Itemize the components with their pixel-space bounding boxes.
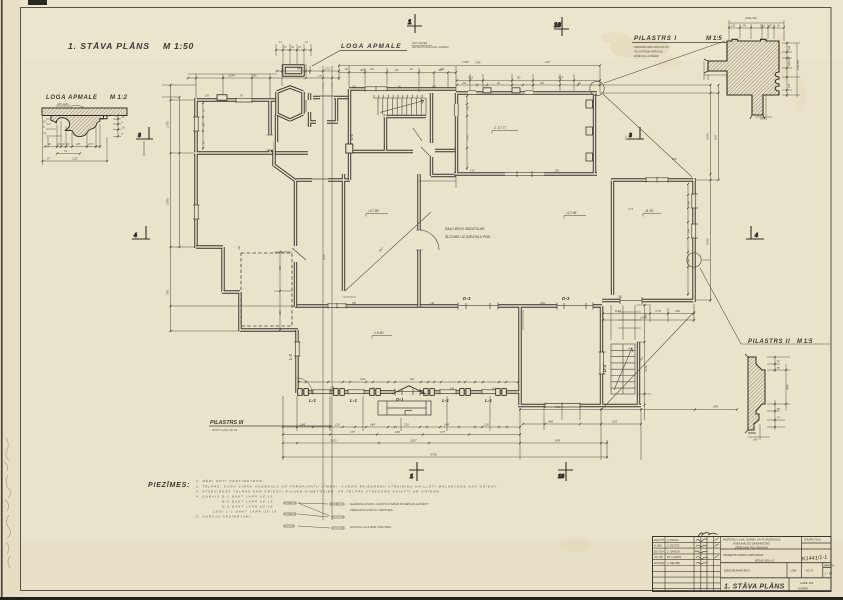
svg-text:RIEĶĒRĒ MĒD ARHIVOLŪTI: RIEĶĒRĒ MĒD ARHIVOLŪTI — [634, 45, 670, 49]
svg-text:180,150: 180,150 — [788, 56, 791, 66]
svg-text:18,5: 18,5 — [760, 25, 765, 28]
svg-text:177: 177 — [350, 430, 355, 434]
svg-text:IZBŪVĒJAMĀ ĒKA: IZBŪVĒJAMĀ ĒKA — [724, 569, 750, 573]
svg-text:959: 959 — [555, 439, 560, 443]
svg-text:G. EGLĪTIS: G. EGLĪTIS — [667, 545, 680, 548]
svg-text:D-3: D-3 — [463, 296, 471, 301]
svg-text:140: 140 — [467, 105, 470, 110]
svg-text:148: 148 — [444, 423, 449, 427]
svg-text:950: 950 — [713, 405, 718, 409]
svg-text:110: 110 — [484, 423, 489, 427]
svg-text:263: 263 — [539, 82, 545, 85]
svg-text:LDM: LDM — [790, 569, 797, 573]
svg-text:DURVJU AILA BAR VĀRTNES: DURVJU AILA BAR VĀRTNES — [350, 525, 391, 529]
svg-text:VR. INŽ.: VR. INŽ. — [654, 556, 664, 559]
svg-text:148: 148 — [370, 423, 375, 427]
svg-text:2. 17.77: 2. 17.77 — [493, 126, 506, 130]
svg-text:2. TELPĀS, KURU SIENU AUGŠDAĻU: 2. TELPĀS, KURU SIENU AUGŠDAĻU AR PĀRMAI… — [195, 484, 499, 489]
svg-text:1 : 50: 1 : 50 — [825, 572, 833, 576]
svg-text:340: 340 — [548, 420, 553, 424]
svg-text:172: 172 — [318, 75, 323, 78]
svg-text:ŠĻITOMS UZ DZĪVOKĻU PND: ŠĻITOMS UZ DZĪVOKĻU PND — [445, 234, 491, 239]
svg-text:442: 442 — [238, 245, 241, 250]
svg-text:M 1:50: M 1:50 — [163, 41, 194, 51]
svg-text:P. RADIŅA: P. RADIŅA — [667, 539, 679, 542]
svg-text:B. REV.: B. REV. — [654, 545, 663, 548]
svg-text:L-1: L-1 — [309, 398, 316, 403]
svg-text:337: 337 — [558, 76, 563, 80]
svg-text:16: 16 — [554, 23, 561, 29]
svg-text:5. DURVJU APZĪMĒJUMI:: 5. DURVJU APZĪMĒJUMI: — [196, 515, 253, 519]
svg-text:PILASTRS I: PILASTRS I — [634, 35, 677, 42]
svg-text:PILASTRIEM APĒUNAL: PILASTRIEM APĒUNAL — [634, 50, 664, 54]
svg-text:455: 455 — [644, 313, 648, 318]
svg-text:A. MELNBR.: A. MELNBR. — [666, 562, 681, 565]
svg-text:700: 700 — [618, 296, 623, 299]
svg-text:9730: 9730 — [430, 453, 437, 457]
svg-text:350: 350 — [760, 118, 765, 121]
svg-text:GRUPA 7DAL: GRUPA 7DAL — [804, 538, 822, 542]
svg-text:± 0.00: ± 0.00 — [374, 331, 384, 335]
svg-text:LOGA APMALE: LOGA APMALE — [46, 95, 98, 101]
svg-text:L-1: L-1 — [349, 133, 354, 140]
svg-text:292: 292 — [409, 378, 415, 381]
svg-text:120: 120 — [788, 45, 791, 50]
svg-text:4. DURVIS D-1 DAKT LAPĀ U: 4. DURVIS D-1 DAKT LAPĀ UZ-15, — [196, 495, 275, 499]
svg-text:640: 640 — [672, 157, 677, 161]
svg-text:ZĪMĒJUMS PID VIDAGAS: ZĪMĒJUMS PID VIDAGAS — [734, 545, 768, 549]
svg-text:1307: 1307 — [410, 439, 417, 443]
svg-text:4.77: 4.77 — [628, 207, 634, 211]
svg-text:331: 331 — [370, 68, 375, 71]
svg-text:390: 390 — [279, 265, 282, 270]
svg-text:25: 25 — [283, 45, 287, 49]
svg-text:LĪST NOVES: LĪST NOVES — [412, 41, 428, 45]
svg-text:148: 148 — [430, 302, 435, 305]
svg-text:140: 140 — [688, 228, 691, 233]
svg-text:390: 390 — [279, 310, 282, 315]
svg-text:L-1: L-1 — [288, 353, 293, 360]
svg-text:2730: 2730 — [323, 254, 326, 261]
svg-text:1940: 1940 — [360, 378, 366, 381]
svg-text:110: 110 — [492, 388, 496, 391]
svg-text:4000: 4000 — [787, 384, 790, 390]
svg-text:263: 263 — [204, 95, 210, 98]
svg-text:Z. GRASOV: Z. GRASOV — [666, 550, 680, 553]
svg-text:2102: 2102 — [329, 439, 337, 443]
svg-text:28: 28 — [57, 142, 61, 146]
svg-text:1: 1 — [410, 474, 413, 480]
svg-text:LOGI L-1 DAKT LAPĀ UZ-19.: LOGI L-1 DAKT LAPĀ UZ-19. — [213, 510, 279, 514]
svg-text:PASŪTĪT.: PASŪTĪT. — [654, 539, 665, 542]
svg-text:1199: 1199 — [228, 74, 235, 78]
svg-text:1410: 1410 — [644, 365, 648, 372]
svg-text:M 1:5: M 1:5 — [797, 339, 813, 345]
svg-text:140: 140 — [203, 122, 206, 127]
svg-text:2390: 2390 — [166, 198, 170, 206]
svg-text:M 1:5: M 1:5 — [706, 35, 722, 42]
svg-text:4.70: 4.70 — [467, 135, 470, 140]
svg-text:414: 414 — [297, 67, 302, 71]
svg-text:IZG.TEH: IZG.TEH — [654, 550, 664, 553]
svg-text:MĒROGS: MĒROGS — [824, 564, 835, 567]
svg-text:H2-G: H2-G — [806, 569, 814, 573]
svg-text:337: 337 — [440, 68, 445, 71]
svg-text:1. STĀVA PLĀNS: 1. STĀVA PLĀNS — [724, 583, 785, 591]
svg-text:148: 148 — [330, 388, 335, 391]
svg-text:3: 3 — [138, 133, 141, 139]
svg-text:182: 182 — [395, 430, 400, 434]
svg-text:110: 110 — [335, 423, 340, 427]
svg-text:L-1: L-1 — [485, 398, 492, 403]
svg-text:277: 277 — [624, 135, 628, 141]
svg-text:M 1:2: M 1:2 — [110, 95, 128, 101]
svg-text:PILASTRS III: PILASTRS III — [210, 420, 244, 426]
svg-text:25: 25 — [121, 115, 125, 119]
svg-text:370+340: 370+340 — [797, 60, 800, 70]
svg-text:785: 785 — [166, 290, 170, 295]
svg-text:760: 760 — [555, 405, 560, 409]
svg-text:1785: 1785 — [166, 121, 170, 128]
svg-text:165: 165 — [76, 142, 81, 146]
svg-text:D-2: D-2 — [602, 364, 607, 372]
svg-text:OBJEKTS NODIV. DZĪVMĀJA: OBJEKTS NODIV. DZĪVMĀJA — [723, 553, 763, 557]
svg-text:VĒRAMAS DURVJU VĒRTNES: VĒRAMAS DURVJU VĒRTNES — [350, 508, 393, 512]
svg-text:D-1: D-1 — [396, 397, 404, 402]
svg-text:LAPE 101: LAPE 101 — [800, 581, 814, 585]
svg-text:140: 140 — [688, 200, 691, 205]
svg-text:90: 90 — [395, 68, 399, 72]
svg-text:1. STĀVA PLĀNS: 1. STĀVA PLĀNS — [68, 41, 150, 51]
svg-text:4: 4 — [133, 233, 137, 239]
svg-text:≈17.96: ≈17.96 — [566, 211, 576, 215]
svg-text:SLĒDZAS DIVVIG. DURVIS KABAM: SLĒDZAS DIVVIG. DURVIS KABAM ROMĒNAS AIZ… — [350, 502, 429, 506]
svg-text:D-3: D-3 — [562, 296, 570, 301]
svg-text:4.02: 4.02 — [470, 170, 475, 173]
svg-text:110: 110 — [404, 423, 409, 427]
svg-text:L-1: L-1 — [442, 398, 449, 403]
svg-text:237: 237 — [544, 60, 550, 64]
svg-text:L-1: L-1 — [350, 398, 357, 403]
svg-text:140: 140 — [753, 439, 758, 442]
svg-text:148: 148 — [450, 388, 455, 391]
svg-text:203: 203 — [351, 86, 357, 89]
svg-text:1799: 1799 — [475, 62, 481, 65]
svg-text:870: 870 — [714, 135, 718, 140]
svg-text:RĪGAS IELA 3: RĪGAS IELA 3 — [755, 559, 774, 563]
svg-text:172: 172 — [325, 67, 330, 71]
svg-text:600: 600 — [555, 170, 560, 173]
svg-text:PIEZĪMES:: PIEZĪMES: — [148, 481, 190, 489]
svg-text:152: 152 — [612, 420, 617, 424]
svg-text:162: 162 — [675, 309, 680, 313]
svg-text:90: 90 — [517, 76, 521, 80]
svg-text:2102: 2102 — [539, 302, 546, 305]
svg-text:PILASTRS II: PILASTRS II — [748, 339, 790, 345]
svg-text:LOGA APMALE: LOGA APMALE — [341, 43, 402, 50]
svg-text:120: 120 — [788, 83, 791, 88]
svg-text:263: 263 — [461, 82, 467, 85]
svg-text:AR SALĪTUVAS GAR VARDAM: AR SALĪTUVAS GAR VARDAM — [411, 45, 449, 49]
svg-text:2390: 2390 — [706, 238, 710, 246]
svg-text:≈17.98: ≈17.98 — [368, 209, 378, 213]
svg-text:90: 90 — [253, 74, 257, 78]
svg-text:590: 590 — [352, 302, 357, 305]
svg-text:16: 16 — [558, 474, 565, 480]
svg-text:3: 3 — [629, 133, 632, 139]
svg-text:2,97: 2,97 — [87, 142, 94, 146]
svg-text:4: 4 — [754, 233, 758, 239]
svg-text:11.93: 11.93 — [645, 209, 653, 213]
svg-text:3. ATSEVIŠĶĀS TELPĀS KAM GRI: 3. ATSEVIŠĶĀS TELPĀS KAM GRIESTI PILNĀM … — [196, 489, 441, 494]
svg-text:DZ. LAGZDS: DZ. LAGZDS — [667, 556, 681, 559]
svg-text:4785: 4785 — [706, 133, 710, 140]
svg-text:D-3 DAKT LAPĀ UZ-16: D-3 DAKT LAPĀ UZ-16 — [222, 505, 273, 509]
svg-text:DAĻU BŪVU VEIDOTA AR: DAĻU BŪVU VEIDOTA AR — [445, 227, 485, 231]
svg-text:177: 177 — [440, 430, 445, 434]
svg-text:331: 331 — [468, 76, 473, 80]
svg-text:ŠVITT LAIK UZ-19: ŠVITT LAIK UZ-19 — [212, 427, 237, 432]
svg-text:4,70: 4,70 — [655, 309, 661, 313]
svg-text:107: 107 — [432, 86, 437, 89]
svg-text:IZSTRĀD.: IZSTRĀD. — [654, 562, 666, 565]
svg-text:(150)+340: (150)+340 — [745, 17, 757, 20]
svg-text:D-2 DAKT LAPĀ UZ-15: D-2 DAKT LAPĀ UZ-15 — [222, 500, 273, 504]
svg-text:331: 331 — [360, 68, 365, 72]
svg-text:120: 120 — [731, 25, 736, 28]
svg-text:KOPEK: KOPEK — [798, 587, 809, 591]
svg-text:6,40: 6,40 — [615, 309, 621, 313]
svg-text:1. MĒRI DOTI CENTIMETROS.: 1. MĒRI DOTI CENTIMETROS. — [196, 479, 265, 483]
svg-text:2102: 2102 — [71, 157, 78, 161]
svg-text:1799: 1799 — [462, 60, 469, 64]
svg-text:APL.DZA: APL.DZA — [56, 102, 69, 106]
svg-text:25: 25 — [297, 45, 301, 49]
